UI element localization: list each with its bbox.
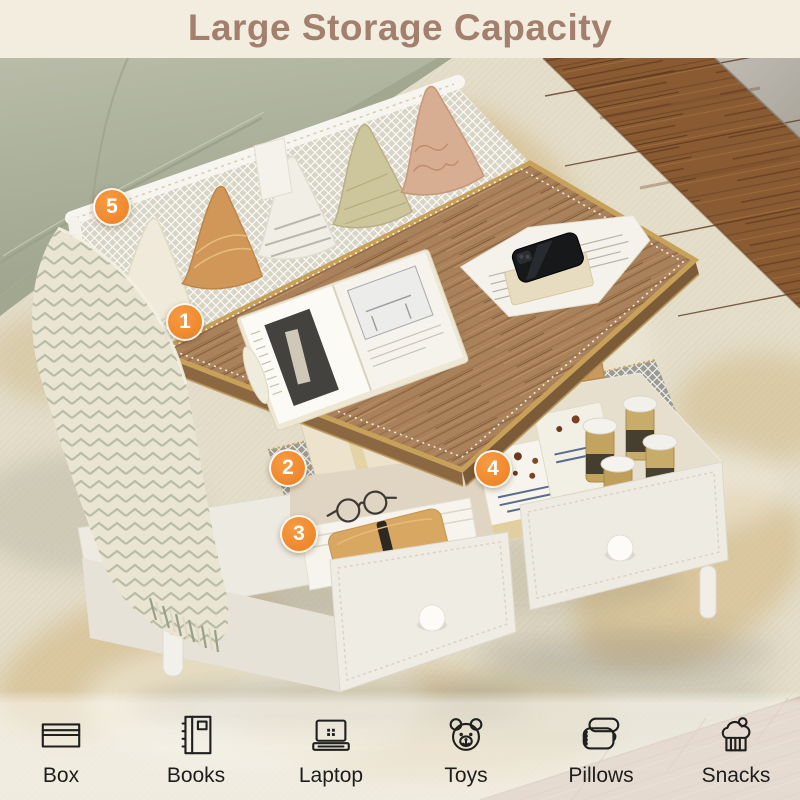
pillows-icon bbox=[578, 710, 624, 758]
legend-label: Books bbox=[167, 764, 225, 788]
callout-badge-2: 2 bbox=[269, 449, 307, 487]
legend-item-toys: Toys bbox=[427, 710, 505, 800]
snacks-icon bbox=[713, 710, 759, 758]
callout-badge-4: 4 bbox=[474, 450, 512, 488]
laptop-icon bbox=[308, 710, 354, 758]
legend-item-laptop: Laptop bbox=[292, 710, 370, 800]
legend-label: Snacks bbox=[702, 764, 771, 788]
legend-item-pillows: Pillows bbox=[562, 710, 640, 800]
page-title: Large Storage Capacity bbox=[0, 0, 800, 56]
legend-bar: Box Books bbox=[0, 690, 800, 800]
legend-label: Pillows bbox=[568, 764, 633, 788]
legend-item-box: Box bbox=[22, 710, 100, 800]
legend-label: Laptop bbox=[299, 764, 363, 788]
box-icon bbox=[38, 710, 84, 758]
legend-item-books: Books bbox=[157, 710, 235, 800]
title-banner: Large Storage Capacity bbox=[0, 0, 800, 58]
product-infographic: Large Storage Capacity bbox=[0, 0, 800, 800]
legend-item-snacks: Snacks bbox=[697, 710, 775, 800]
callout-badge-1: 1 bbox=[166, 303, 204, 341]
callout-badge-5: 5 bbox=[93, 188, 131, 226]
callout-badge-3: 3 bbox=[280, 515, 318, 553]
toys-icon bbox=[443, 710, 489, 758]
legend-label: Box bbox=[43, 764, 79, 788]
product-photo bbox=[0, 58, 800, 800]
books-icon bbox=[173, 710, 219, 758]
legend-label: Toys bbox=[444, 764, 487, 788]
